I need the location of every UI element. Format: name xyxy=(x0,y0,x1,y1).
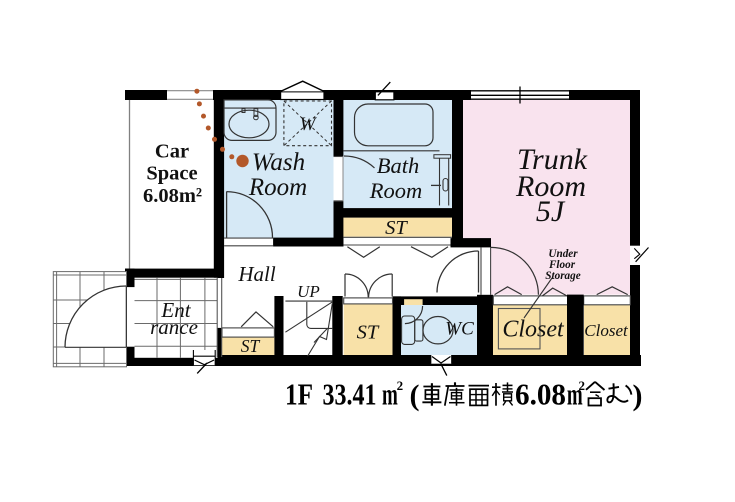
svg-text:2: 2 xyxy=(579,378,586,393)
svg-text:33.41: 33.41 xyxy=(323,377,377,412)
svg-text:): ) xyxy=(633,379,643,412)
svg-text:ST: ST xyxy=(357,322,380,344)
svg-text:ST: ST xyxy=(241,336,261,356)
svg-text:Room: Room xyxy=(369,178,423,203)
svg-text:Closet: Closet xyxy=(584,321,629,340)
svg-text:ST: ST xyxy=(385,217,408,239)
svg-text:m: m xyxy=(382,377,398,412)
svg-text:(: ( xyxy=(410,379,420,412)
svg-text:Car: Car xyxy=(155,141,189,163)
svg-text:Closet: Closet xyxy=(502,317,565,343)
svg-text:W: W xyxy=(300,114,318,135)
svg-text:Bath: Bath xyxy=(377,153,420,178)
svg-text:Space: Space xyxy=(146,163,197,185)
svg-text:5J: 5J xyxy=(536,195,566,228)
svg-text:1F: 1F xyxy=(285,377,313,412)
svg-text:rance: rance xyxy=(150,315,198,339)
svg-text:Storage: Storage xyxy=(545,270,580,282)
svg-text:UP: UP xyxy=(297,282,320,301)
svg-text:6.08m²: 6.08m² xyxy=(143,185,202,207)
svg-text:Room: Room xyxy=(248,174,307,201)
svg-text:6.08: 6.08 xyxy=(515,377,566,412)
svg-text:WC: WC xyxy=(445,319,474,340)
svg-text:Hall: Hall xyxy=(237,262,276,286)
svg-text:2: 2 xyxy=(397,378,404,393)
svg-text:Wash: Wash xyxy=(252,149,305,176)
